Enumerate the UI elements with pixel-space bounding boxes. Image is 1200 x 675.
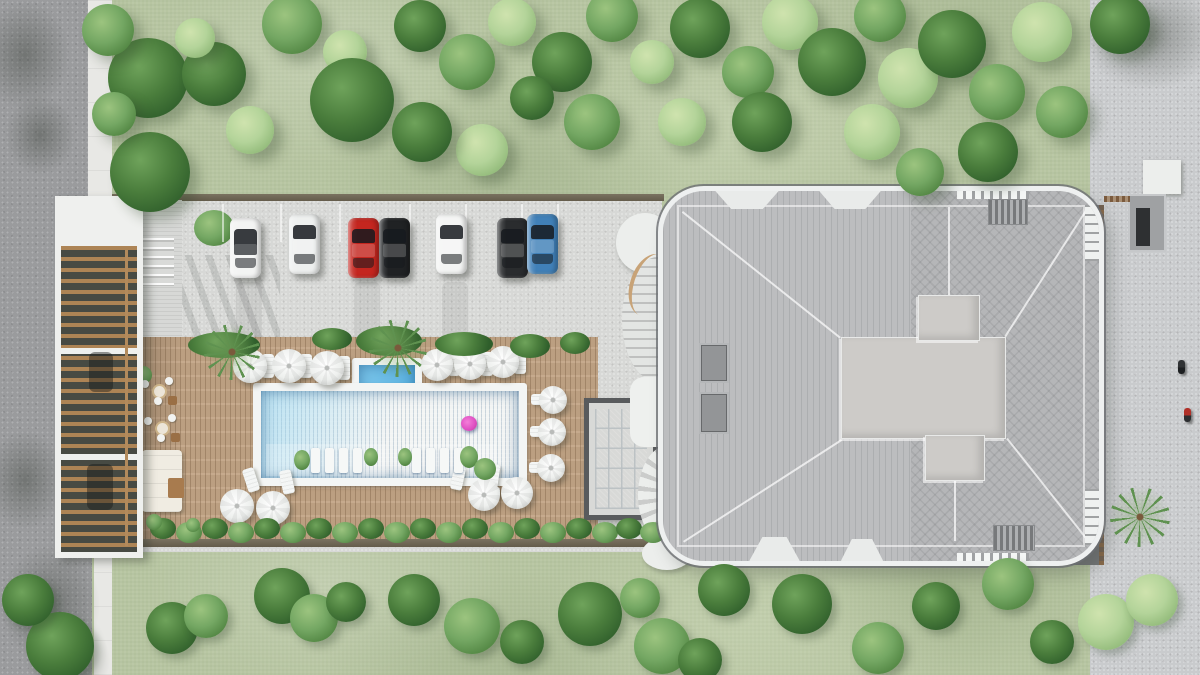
round-table-2 <box>155 421 170 436</box>
roof-ridge-bottom <box>954 479 956 541</box>
pergola-solid-roof <box>61 202 137 246</box>
pool-lounger-ledge-left <box>266 444 386 476</box>
pergola-post <box>125 250 128 546</box>
roof-ridge-top <box>948 207 950 297</box>
stair-shadow-on-parking <box>175 255 280 340</box>
roof-vent-bottom <box>993 525 1035 551</box>
side-steps <box>140 238 174 286</box>
balcony-rail-right-top <box>1085 205 1099 261</box>
roof-plateau-top-arm <box>918 295 980 341</box>
round-table-1 <box>152 384 167 399</box>
roof-plateau-center <box>841 337 1006 439</box>
roof-railing-bottom <box>957 553 1029 561</box>
pool-lounger-ledge-right <box>404 444 496 476</box>
pergola-furniture-shadow-1 <box>89 352 113 392</box>
entrance-door <box>1136 208 1150 246</box>
deck-retaining-wall <box>112 539 665 547</box>
roof-railing-top <box>957 191 1029 199</box>
pergola-furniture-shadow-2 <box>87 464 113 510</box>
entrance-canopy <box>1143 160 1181 194</box>
pink-pool-float <box>461 416 477 431</box>
site-plan-render <box>0 0 1200 675</box>
roof-skylight-2 <box>699 392 729 434</box>
coffee-table <box>168 478 184 498</box>
stool-2 <box>171 433 180 442</box>
stool-1 <box>168 396 177 405</box>
pergola <box>55 196 143 558</box>
roof-vent-top <box>988 199 1028 225</box>
apartment-building-roof <box>658 186 1104 566</box>
lawn-parking-edge <box>112 194 664 201</box>
top-lawn <box>112 0 1090 202</box>
balcony-rail-right-bottom <box>1085 489 1099 545</box>
roof-plateau-bottom-arm <box>925 435 985 481</box>
right-walkway <box>1090 0 1200 675</box>
boundary-fence <box>1104 196 1130 202</box>
roof-skylight-1 <box>699 343 729 383</box>
parking-bush <box>194 210 234 246</box>
